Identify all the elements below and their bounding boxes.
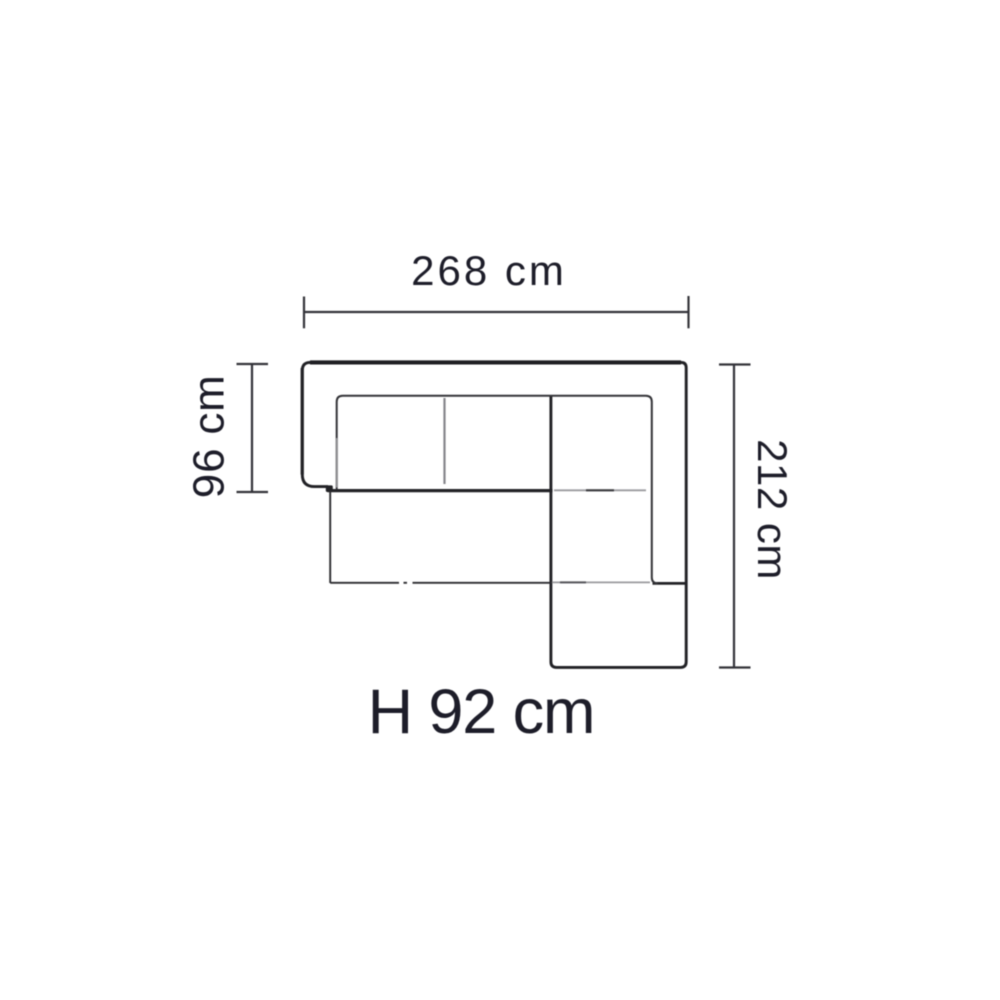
svg-text:212 cm: 212 cm [749,439,796,580]
svg-text:H 92 cm: H 92 cm [368,677,595,747]
svg-text:96 cm: 96 cm [184,374,233,498]
svg-text:268 cm: 268 cm [411,247,567,294]
